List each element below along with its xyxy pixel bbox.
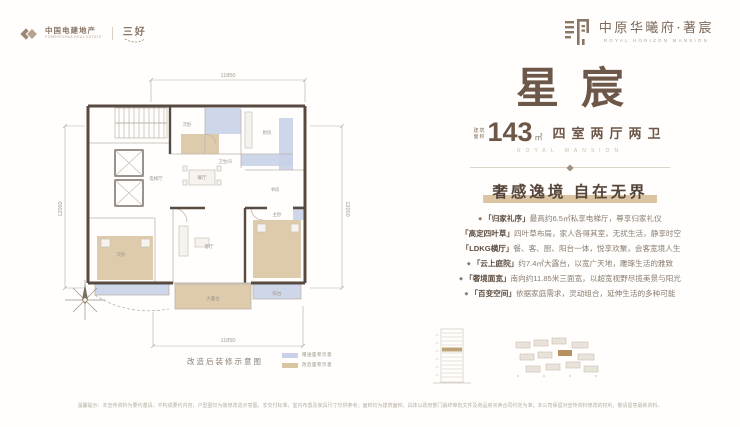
sub-brand-name: 三好	[123, 23, 147, 38]
legend-item-renovated: 改造面积示意	[282, 362, 332, 368]
area-value: 143	[487, 121, 532, 144]
powerchina-logo-icon	[20, 26, 38, 42]
diamond-bullet-icon: ◆	[459, 276, 463, 282]
legend-label-renovated: 改造面积示意	[302, 362, 332, 368]
poster: 中国电建地产 POWERCHINA REAL ESTATE 三好	[0, 0, 740, 427]
room-terrace: 大露台	[206, 295, 220, 302]
brand-divider	[112, 27, 113, 40]
brand-right: 中原华曦府·著宸 ROYAL HORIZON MANSION	[565, 17, 714, 47]
room-kitchen: 厨房	[263, 129, 272, 136]
dim-bottom: 11850	[221, 338, 236, 344]
selling-point: ◆「云上庭院」约7.4㎡大露台，以宽广天地，雕琢生活的雅致	[413, 260, 727, 268]
brand-left-name-en: POWERCHINA REAL ESTATE	[45, 36, 102, 40]
building-elevation-diagram	[433, 327, 471, 385]
legend-swatch-renovated	[282, 363, 298, 368]
brand-left: 中国电建地产 POWERCHINA REAL ESTATE 三好	[20, 23, 147, 44]
floorplan-drawing: 11850 11850 12050 12050 电梯厅 次卧 厨房 卫生间 餐厅…	[55, 58, 405, 358]
room-hall: 电梯厅	[149, 175, 163, 182]
selling-point: ◆「归家礼序」最高约6.5㎡私享电梯厅，尊享归家礼仪	[413, 215, 727, 223]
unit-spec: 四室两厅两卫	[553, 123, 667, 142]
room-bedroom-b: 次卧	[117, 251, 126, 258]
diamond-bullet-icon: ◆	[465, 291, 469, 297]
divider	[470, 167, 670, 168]
area-label: 建筑 面积	[473, 128, 485, 140]
legend-swatch-gift	[282, 353, 298, 358]
mansion-logo-icon	[565, 17, 591, 47]
selling-point: ◆「奢境面宽」南向约11.85米三面宽，以超宽视野尽揽美景与阳光	[413, 275, 727, 283]
area-label-line2: 面积	[473, 134, 485, 140]
brand-left-name: 中国电建地产	[45, 27, 102, 35]
selling-point: 「高定四叶草」四叶草布局，家人各得其室，无扰生活，静享时空	[413, 230, 727, 238]
room-bath: 卫生间	[218, 158, 232, 165]
diamond-bullet-icon: ◆	[478, 216, 482, 222]
legend-label-gift: 赠送面积示意	[302, 352, 332, 358]
unit-title: 星宸	[413, 66, 727, 113]
room-master: 主卧	[273, 211, 282, 218]
legend-item-gift: 赠送面积示意	[282, 352, 332, 358]
stairs	[115, 108, 167, 138]
brand-right-name: 中原华曦府·著宸	[599, 21, 714, 37]
dim-left: 12050	[58, 201, 64, 216]
diamond-bullet-icon: ◆	[467, 261, 471, 267]
dim-top: 11850	[221, 73, 236, 79]
site-plan-diagram	[514, 336, 602, 380]
room-balcony: 阳台	[273, 290, 282, 297]
sub-brand-arc	[123, 38, 147, 44]
selling-points: ◆「归家礼序」最高约6.5㎡私享电梯厅，尊享归家礼仪 「高定四叶草」四叶草布局，…	[413, 215, 727, 298]
selling-point: ◆「百变空间」依据家庭需求，灵动组合，延伸生活的多种可能	[413, 290, 727, 298]
tagline-text: 奢感逸境 自在无界	[492, 184, 647, 201]
disclaimer-text: 温馨提示：本宣传资料为要约邀请，不构成要约内容；户型图仅为装修改造示意图，非交付…	[59, 402, 681, 409]
room-dining: 餐厅	[198, 174, 207, 181]
dim-right: 12050	[344, 201, 350, 216]
room-study: 书房	[271, 186, 280, 193]
brand-right-name-en: ROYAL HORIZON MANSION	[604, 38, 709, 43]
area-unit: ㎡	[535, 132, 543, 143]
tagline: 奢感逸境 自在无界	[492, 180, 647, 202]
selling-point: 「LDKG横厅」餐、客、厨、阳台一体，悦享欢聚，会客宽境人生	[413, 245, 727, 253]
unit-subtitle-en: ROYAL MANSION	[413, 148, 727, 154]
elevator-shafts	[115, 150, 143, 206]
room-living: 客厅	[205, 243, 214, 250]
floorplan-legend: 赠送面积示意 改造面积示意	[282, 352, 332, 368]
unit-panel: 星宸 建筑 面积 143 ㎡ 四室两厅两卫 ROYAL MANSION 奢感逸境…	[413, 66, 727, 305]
divider-ornament-icon	[566, 164, 573, 171]
unit-specline: 建筑 面积 143 ㎡ 四室两厅两卫	[413, 121, 727, 144]
floorplan-caption: 改造后装修示意图	[150, 356, 300, 367]
room-bedroom-a: 次卧	[183, 121, 192, 128]
